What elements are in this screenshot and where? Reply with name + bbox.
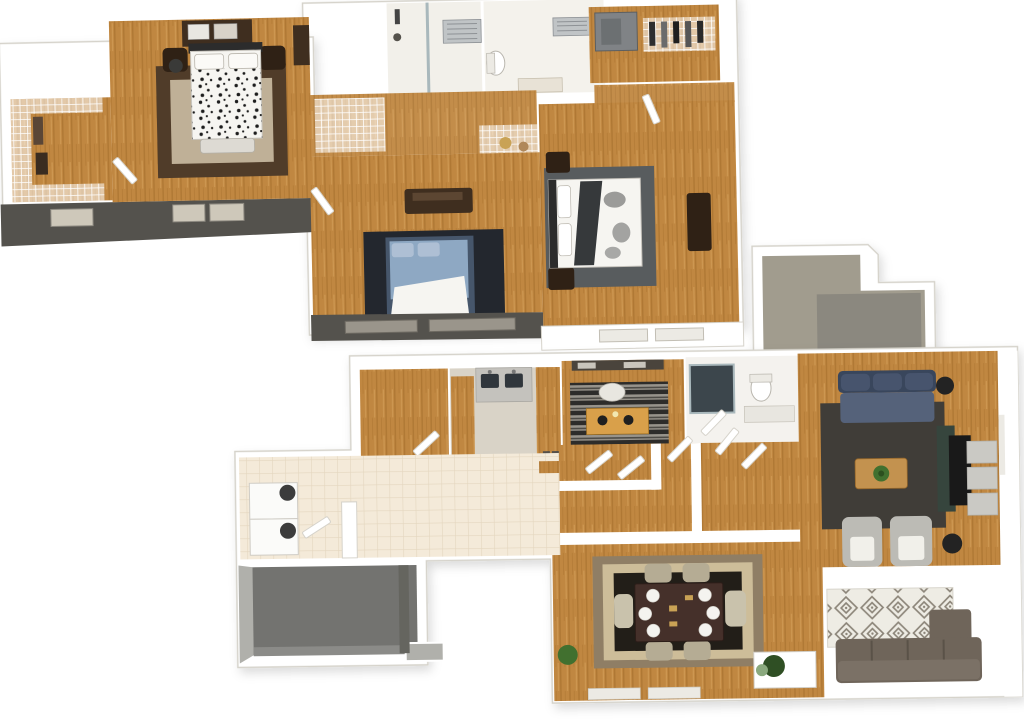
walk-in-closet-west — [10, 97, 112, 202]
floor-plan-canvas — [0, 0, 1024, 724]
wire-shelf — [30, 97, 102, 114]
floor-transition — [539, 461, 559, 473]
desk — [586, 408, 648, 435]
cabinet-run — [536, 367, 561, 461]
garage-shadow-edge — [398, 565, 409, 653]
table-runner-item — [685, 595, 693, 600]
sofa — [838, 370, 937, 423]
shelf-items — [578, 362, 596, 368]
bedroom-2 — [310, 152, 543, 317]
table-runner-item — [669, 621, 677, 626]
exterior-wall-band-west — [1, 198, 318, 247]
vanity — [744, 406, 794, 423]
den — [360, 369, 449, 460]
armchair — [890, 516, 933, 567]
shower-grate — [553, 17, 591, 36]
dresser-tray — [188, 24, 209, 39]
garage-apron — [238, 565, 253, 663]
window — [51, 209, 93, 227]
toilet-tank — [487, 53, 495, 73]
sofa-seat — [838, 659, 980, 681]
sink-basin — [505, 373, 523, 387]
wire-shelf — [10, 99, 32, 202]
dresser — [687, 193, 712, 251]
bed-bench — [200, 138, 254, 153]
interior-wall — [651, 444, 662, 490]
window — [345, 320, 417, 334]
bedroom-3 — [538, 92, 739, 326]
shower-fixture — [395, 9, 400, 24]
upper-floor — [0, 0, 744, 361]
toilet-tank — [750, 374, 772, 382]
pillow — [418, 242, 440, 256]
tall-dresser — [293, 25, 310, 65]
hanging-clothes — [33, 117, 44, 145]
shower-grate — [443, 19, 481, 43]
lower-bathroom — [686, 356, 799, 444]
vanity — [518, 78, 562, 93]
garage-step — [406, 643, 444, 662]
dalmatian-duvet — [191, 68, 262, 139]
interior-wall — [691, 443, 702, 541]
bathroom-floor — [387, 1, 483, 96]
window — [655, 328, 703, 341]
window — [173, 204, 205, 222]
armchair — [842, 516, 883, 567]
console-top — [412, 192, 462, 201]
patio-inset — [817, 293, 922, 349]
window — [429, 318, 515, 332]
living-room — [798, 351, 1001, 568]
walk-in-closet-east — [589, 4, 721, 83]
window — [210, 203, 244, 221]
hall-closet-shelf — [315, 97, 386, 152]
den-floor — [360, 369, 449, 460]
pillow — [558, 224, 572, 256]
floor-plan-svg — [0, 0, 1024, 724]
desk-chair — [599, 383, 625, 401]
shelf-items — [624, 362, 646, 368]
laundry-entry — [239, 453, 560, 559]
sink-basin — [481, 374, 499, 388]
pillow — [557, 186, 571, 218]
patio-entry — [752, 244, 936, 363]
shower — [690, 365, 735, 414]
entry-partition — [342, 502, 358, 558]
dining-room — [552, 541, 824, 701]
pillow — [195, 54, 224, 70]
centerpiece — [669, 605, 677, 611]
nightstand — [548, 268, 574, 291]
dresser-tray — [214, 24, 237, 39]
pillow — [229, 53, 258, 69]
wall-shade — [998, 415, 1005, 475]
hanging-clothes — [36, 153, 48, 175]
garage — [238, 563, 443, 664]
master-bedroom — [109, 17, 313, 202]
garage-floor — [248, 565, 417, 655]
window-bench — [967, 441, 998, 515]
nightstand — [546, 152, 570, 173]
pillow — [392, 243, 414, 257]
interior-wall — [559, 480, 659, 491]
window — [599, 329, 647, 342]
nightstand — [259, 46, 285, 71]
wire-shelf — [32, 183, 104, 202]
window — [648, 687, 700, 699]
bathroom-2 — [483, 0, 605, 94]
bathroom-1 — [387, 1, 483, 96]
cabinet-door — [601, 19, 622, 45]
hallway-floor — [559, 442, 804, 543]
cabinet-run — [451, 376, 475, 464]
window — [588, 688, 640, 700]
office — [562, 359, 685, 457]
